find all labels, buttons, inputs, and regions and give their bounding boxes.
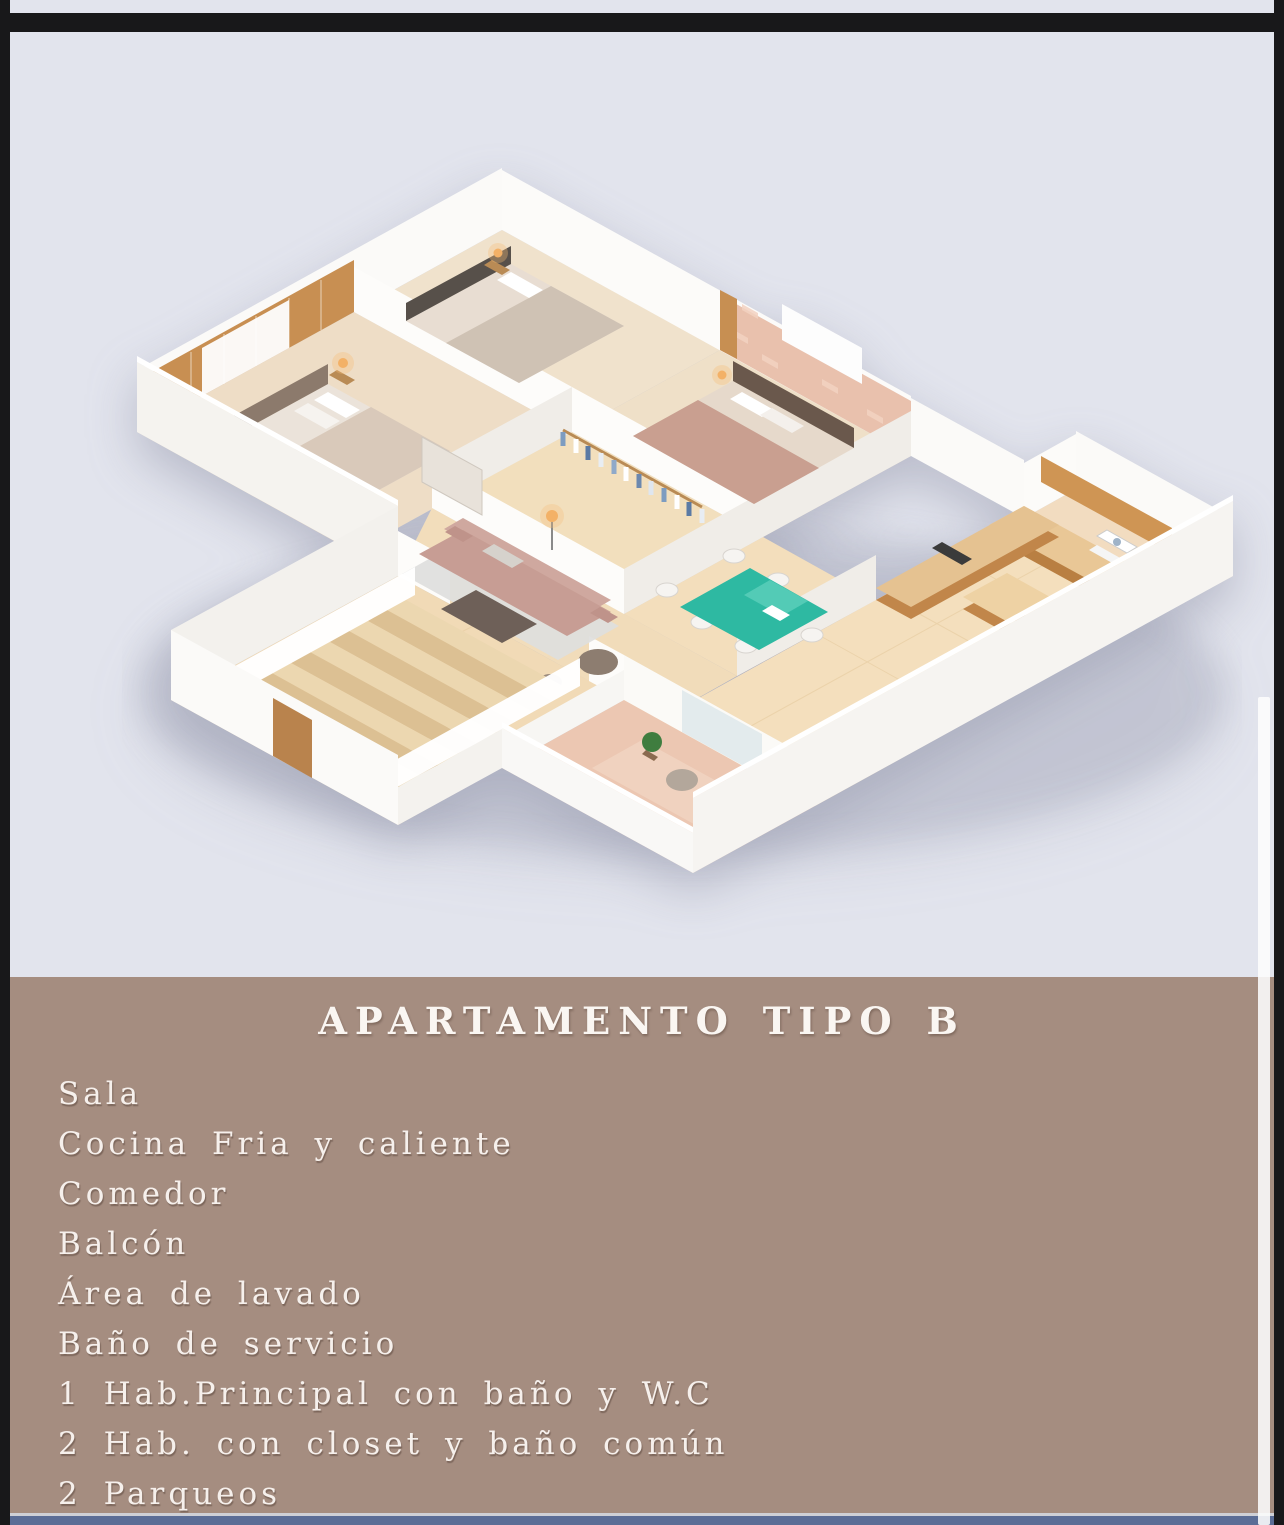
balcony-plant xyxy=(642,732,662,752)
armchair xyxy=(578,649,618,675)
wood-divider xyxy=(720,290,737,359)
top-strip xyxy=(10,0,1274,13)
bottom-blue-bar xyxy=(10,1516,1274,1525)
feature-item: 2 Parqueos xyxy=(58,1469,1234,1513)
feature-list: SalaCocina Fria y calienteComedorBalcónÁ… xyxy=(10,1069,1274,1513)
feature-item: Área de lavado xyxy=(58,1269,1234,1319)
bedroom3-lamp xyxy=(718,371,727,380)
master-lamp xyxy=(338,358,348,368)
bedroom2-lamp xyxy=(494,249,503,258)
feature-item: Sala xyxy=(58,1069,1234,1119)
feature-item: Baño de servicio xyxy=(58,1319,1234,1369)
apartment-title: APARTAMENTO TIPO B xyxy=(10,977,1274,1043)
scrollbar[interactable] xyxy=(1258,697,1270,1525)
floor-lamp xyxy=(546,510,558,522)
feature-item: 2 Hab. con closet y baño común xyxy=(58,1419,1234,1469)
feature-item: Balcón xyxy=(58,1219,1234,1269)
feature-item: Cocina Fria y caliente xyxy=(58,1119,1234,1169)
feature-item: 1 Hab.Principal con baño y W.C xyxy=(58,1369,1234,1419)
top-black-bar xyxy=(10,13,1274,32)
page-frame: APARTAMENTO TIPO B SalaCocina Fria y cal… xyxy=(0,0,1284,1525)
floor-plan-render xyxy=(122,150,1242,920)
feature-item: Comedor xyxy=(58,1169,1234,1219)
info-panel: APARTAMENTO TIPO B SalaCocina Fria y cal… xyxy=(10,977,1274,1513)
floor-plan-area xyxy=(10,32,1274,977)
kitchen-far-wall xyxy=(911,398,1024,518)
balcony-chair xyxy=(666,769,698,791)
